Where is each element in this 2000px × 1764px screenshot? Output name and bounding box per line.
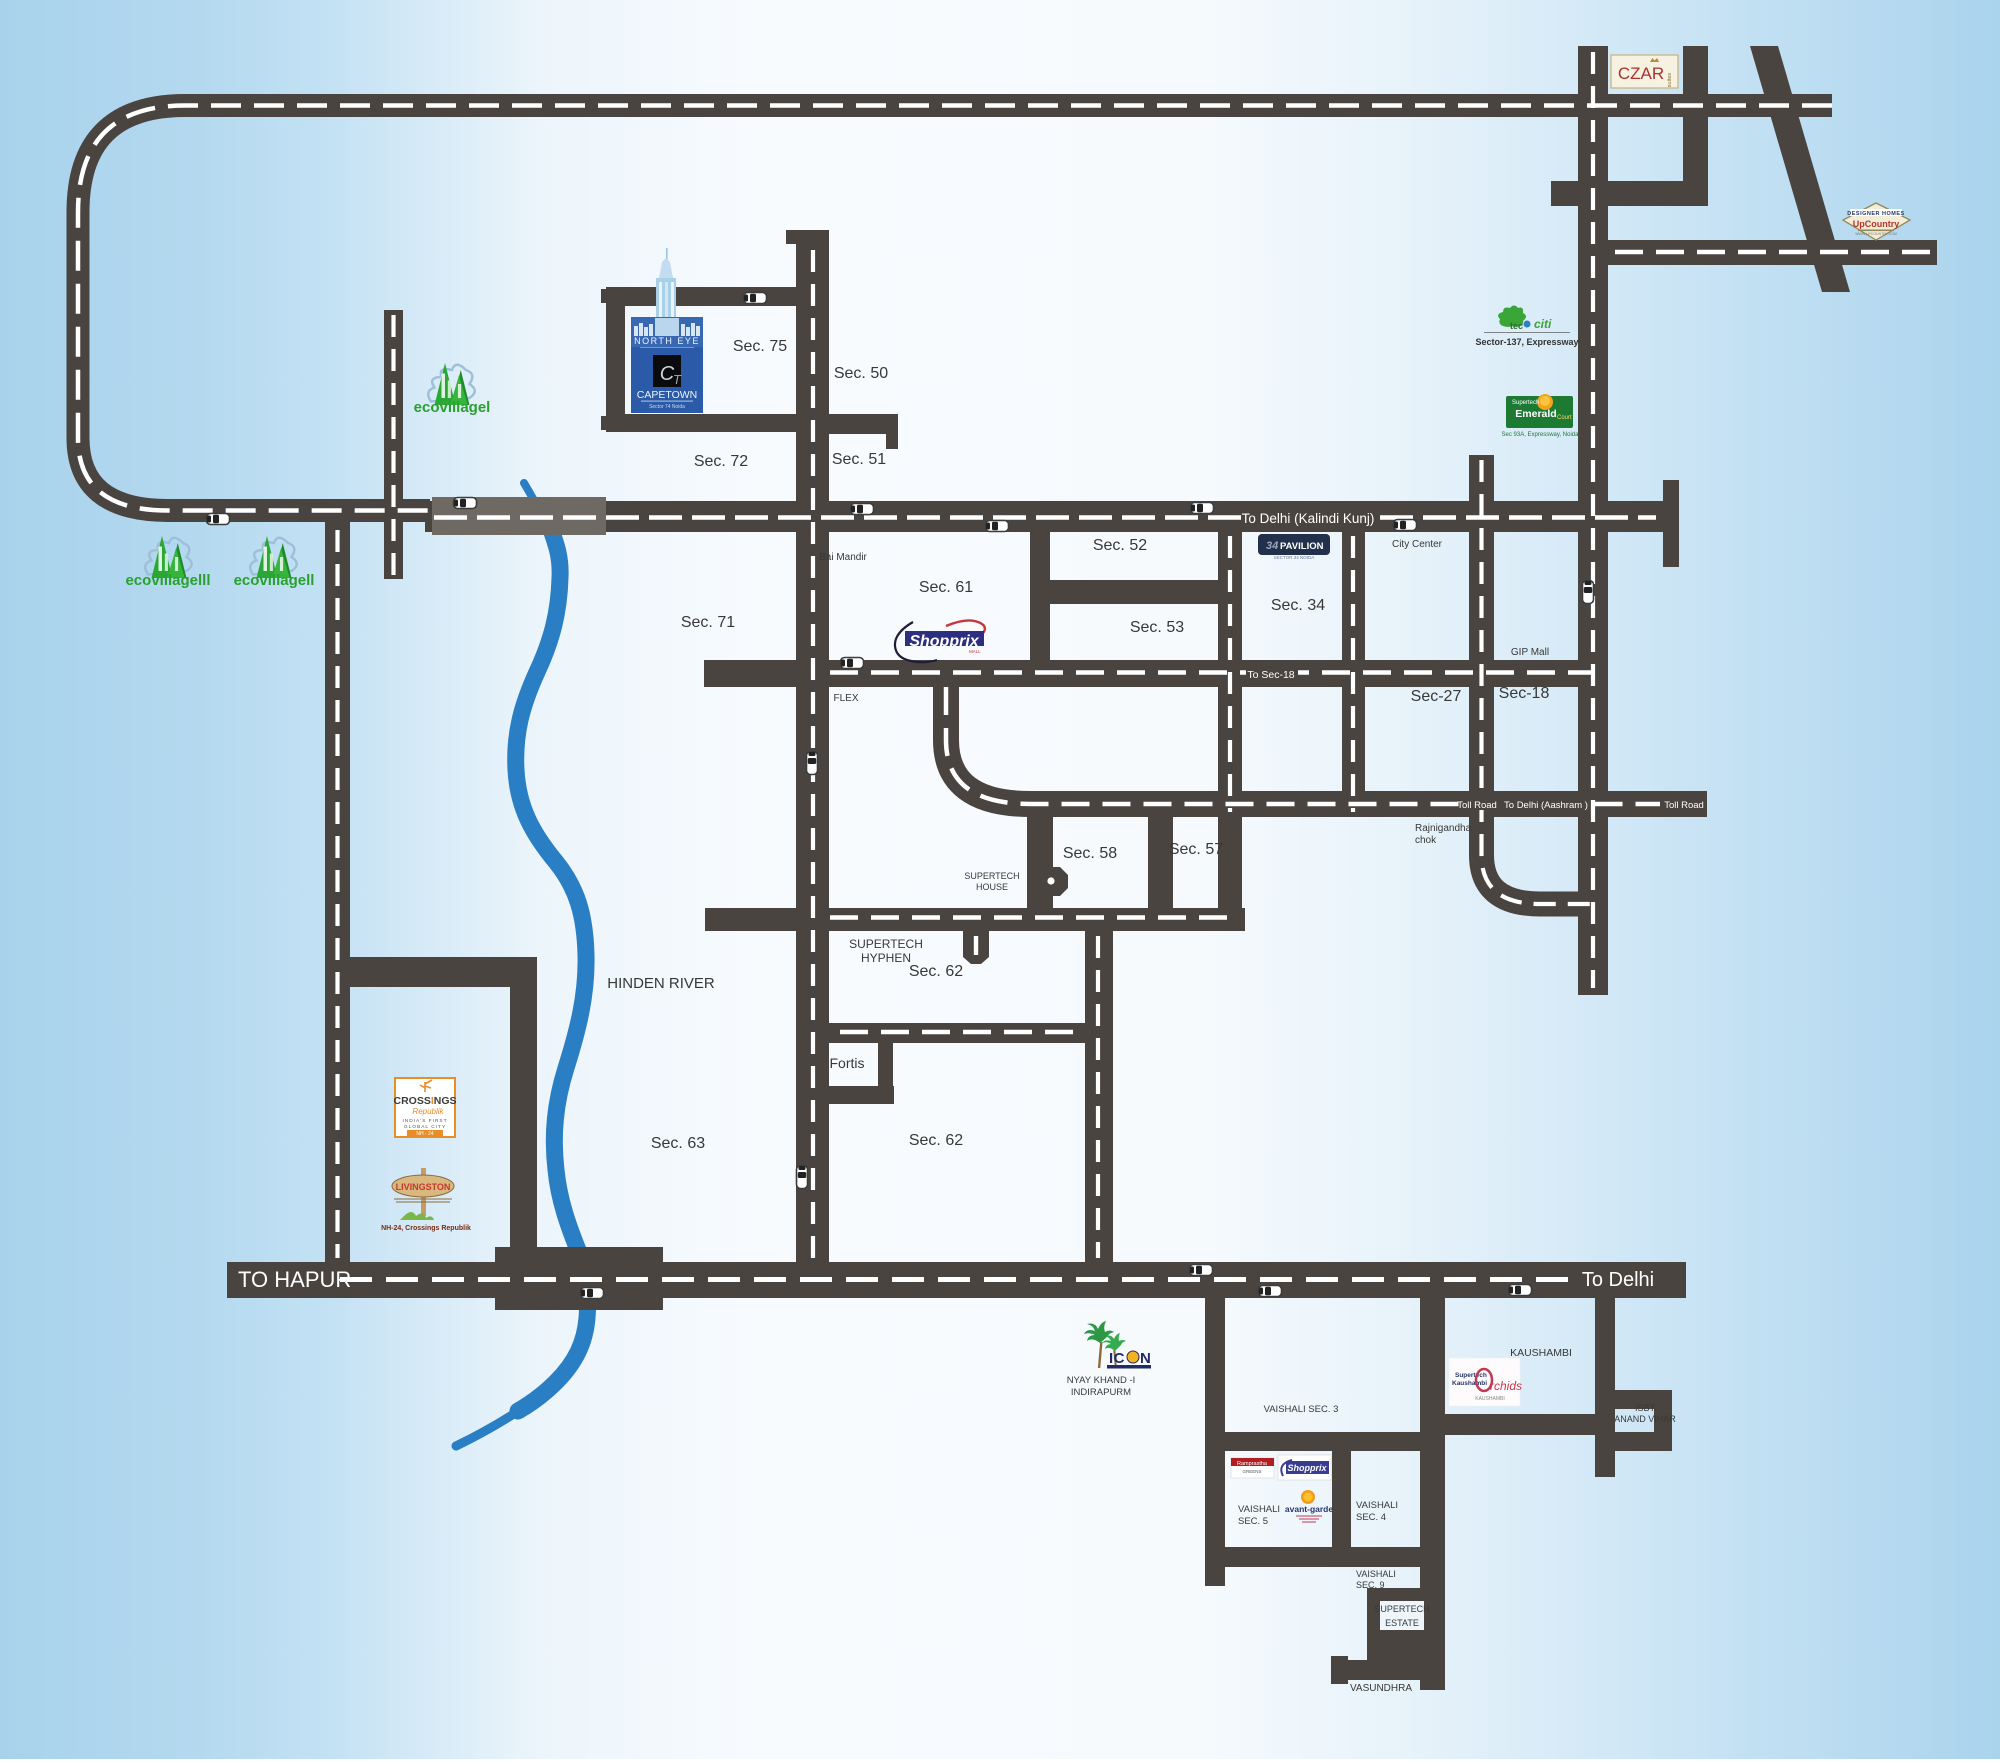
svg-text:T: T: [673, 372, 682, 387]
svg-text:ecovillagelll: ecovillagelll: [125, 572, 210, 589]
svg-text:Sec. 58: Sec. 58: [1063, 845, 1117, 862]
svg-text:KAUSHAMBI: KAUSHAMBI: [1475, 1396, 1504, 1402]
svg-text:NH - 24: NH - 24: [416, 1131, 433, 1137]
svg-text:Fortis: Fortis: [830, 1055, 865, 1071]
svg-text:VAISHALI: VAISHALI: [1356, 1500, 1398, 1511]
svg-text:Court: Court: [1557, 415, 1572, 421]
svg-text:VASUNDHRA: VASUNDHRA: [1350, 1683, 1412, 1694]
svg-text:Sec. 53: Sec. 53: [1130, 619, 1184, 636]
svg-text:City Center: City Center: [1392, 539, 1443, 550]
svg-text:34: 34: [1266, 540, 1278, 552]
svg-text:DESIGNER HOMES: DESIGNER HOMES: [1847, 211, 1904, 217]
svg-text:Ramprastha: Ramprastha: [1237, 1461, 1268, 1467]
svg-text:chok: chok: [1415, 835, 1437, 846]
svg-text:NH-24, Crossings Republik: NH-24, Crossings Republik: [381, 1225, 471, 1232]
svg-text:CROSSINGS: CROSSINGS: [393, 1095, 456, 1107]
svg-text:VAISHALI: VAISHALI: [1238, 1504, 1280, 1515]
svg-text:To Delhi: To Delhi: [1582, 1269, 1654, 1291]
svg-text:PAVILION: PAVILION: [1280, 541, 1324, 552]
svg-text:SEC. 9: SEC. 9: [1356, 1580, 1385, 1590]
svg-text:Sec. 72: Sec. 72: [694, 453, 748, 470]
svg-text:GLOBAL CITY: GLOBAL CITY: [404, 1124, 446, 1130]
svg-text:WWW.UPCOUNTRY.COM: WWW.UPCOUNTRY.COM: [1855, 232, 1897, 236]
svg-text:KAUSHAMBI: KAUSHAMBI: [1510, 1347, 1572, 1359]
svg-text:Sec. 62: Sec. 62: [909, 1132, 963, 1149]
svg-text:Sec. 61: Sec. 61: [919, 579, 973, 596]
svg-text:FLEX: FLEX: [833, 693, 858, 704]
svg-text:N: N: [1140, 1350, 1151, 1367]
svg-text:Sec. 51: Sec. 51: [832, 451, 886, 468]
svg-text:Sec. 62: Sec. 62: [909, 963, 963, 980]
svg-text:ESTATE: ESTATE: [1385, 1618, 1419, 1628]
svg-text:To Delhi (Kalindi Kunj): To Delhi (Kalindi Kunj): [1242, 511, 1375, 526]
svg-text:NORTH EYE: NORTH EYE: [634, 336, 700, 346]
svg-text:Republik: Republik: [412, 1107, 444, 1116]
svg-text:Sec. 52: Sec. 52: [1093, 537, 1147, 554]
svg-text:suites: suites: [1667, 73, 1673, 88]
svg-text:Sec 93A, Expressway, Noida: Sec 93A, Expressway, Noida: [1502, 432, 1580, 438]
svg-text:Shopprix: Shopprix: [1287, 1463, 1327, 1473]
svg-text:VAISHALI SEC. 3: VAISHALI SEC. 3: [1264, 1404, 1339, 1415]
svg-text:Sector-137, Expressway: Sector-137, Expressway: [1475, 337, 1578, 347]
svg-text:INDIRAPURM: INDIRAPURM: [1071, 1387, 1131, 1398]
svg-text:IC: IC: [1109, 1350, 1125, 1367]
svg-text:Sec. 75: Sec. 75: [733, 338, 787, 355]
svg-text:Sector 74 Noida: Sector 74 Noida: [649, 404, 685, 410]
svg-text:Sec-27: Sec-27: [1411, 688, 1462, 705]
svg-text:Bai Mandir: Bai Mandir: [819, 552, 867, 563]
svg-text:VAISHALI: VAISHALI: [1356, 1569, 1396, 1579]
svg-text:LIVINGSTON: LIVINGSTON: [396, 1182, 451, 1192]
svg-text:MALL: MALL: [969, 649, 981, 654]
svg-text:UpCountry: UpCountry: [1853, 219, 1900, 229]
svg-text:Toll Road: Toll Road: [1457, 800, 1497, 811]
svg-text:SEC. 5: SEC. 5: [1238, 1516, 1268, 1527]
svg-text:Emerald: Emerald: [1515, 408, 1556, 420]
svg-text:SUPERTECH: SUPERTECH: [849, 937, 923, 951]
svg-text:Sec. 50: Sec. 50: [834, 365, 888, 382]
svg-text:TO HAPUR: TO HAPUR: [238, 1267, 351, 1292]
svg-text:ecovillagell: ecovillagell: [234, 572, 315, 589]
svg-text:SEC. 4: SEC. 4: [1356, 1512, 1386, 1523]
svg-text:SUPERTECH: SUPERTECH: [964, 871, 1019, 881]
svg-text:Rajnigandha: Rajnigandha: [1415, 823, 1472, 834]
svg-text:SECTOR 34 NOIDA: SECTOR 34 NOIDA: [1274, 555, 1314, 560]
svg-text:Toll Road: Toll Road: [1664, 800, 1704, 811]
svg-text:Kaushambi: Kaushambi: [1452, 1380, 1487, 1387]
svg-text:Sec. 57: Sec. 57: [1169, 841, 1223, 858]
svg-text:citi: citi: [1534, 317, 1552, 331]
svg-text:NYAY KHAND -I: NYAY KHAND -I: [1067, 1375, 1136, 1386]
svg-text:Sec. 63: Sec. 63: [651, 1135, 705, 1152]
svg-text:Sec-18: Sec-18: [1499, 685, 1550, 702]
svg-text:avant-garde: avant-garde: [1285, 1504, 1333, 1514]
svg-text:INDIA'S FIRST: INDIA'S FIRST: [402, 1118, 447, 1124]
svg-text:ANAND VIHAR: ANAND VIHAR: [1614, 1414, 1676, 1424]
svg-text:Sec. 71: Sec. 71: [681, 614, 735, 631]
svg-text:Supertech: Supertech: [1455, 1372, 1487, 1379]
svg-text:To Sec-18: To Sec-18: [1247, 669, 1294, 681]
svg-text:HOUSE: HOUSE: [976, 882, 1008, 892]
svg-text:ISBT: ISBT: [1635, 1403, 1656, 1413]
svg-text:CZAR: CZAR: [1618, 64, 1664, 83]
svg-text:To Delhi (Aashram ): To Delhi (Aashram ): [1504, 800, 1588, 811]
svg-text:ecovillagel: ecovillagel: [414, 399, 491, 416]
svg-text:tec: tec: [1510, 321, 1523, 331]
svg-text:SUPERTECH: SUPERTECH: [1374, 1604, 1429, 1614]
svg-text:HYPHEN: HYPHEN: [861, 951, 911, 965]
svg-text:GIP Mall: GIP Mall: [1511, 647, 1549, 658]
svg-text:Supertech: Supertech: [1512, 400, 1539, 406]
svg-text:Shopprix: Shopprix: [909, 633, 979, 650]
svg-text:GREENS: GREENS: [1242, 1469, 1261, 1474]
svg-text:rchids: rchids: [1490, 1379, 1522, 1393]
svg-text:CAPETOWN: CAPETOWN: [637, 389, 697, 401]
svg-text:Sec. 34: Sec. 34: [1271, 597, 1325, 614]
svg-text:HINDEN RIVER: HINDEN RIVER: [607, 975, 715, 992]
